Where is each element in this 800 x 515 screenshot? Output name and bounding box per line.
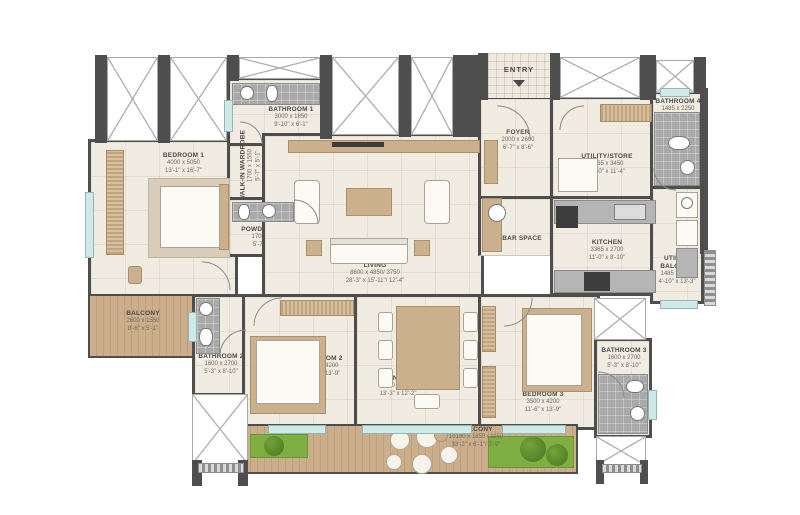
washbasin [199,302,213,316]
bush-icon [264,436,284,456]
room-label-kitchen: KITCHEN 3365 x 2700 11'-0" x 8'-10" [559,239,655,262]
wardrobe [482,366,496,418]
window-bathroom1 [224,100,233,132]
pouf-seat [386,454,402,470]
toilet [266,85,278,102]
pouf-seat [412,454,432,474]
washbasin [680,160,695,175]
wardrobe [482,306,496,352]
shaft-top-1 [107,57,158,141]
sofa-back [330,238,408,245]
bar-basin [488,204,506,222]
tv-console [288,140,480,153]
wall-segment [478,53,488,100]
wardrobe [106,150,124,255]
tv [332,142,384,147]
room-label-bathroom2: BATHROOM 2 1600 x 2700 5'-3" x 8'-10" [193,353,249,376]
wall-segment [453,55,478,137]
wall-segment [550,53,560,100]
bed [256,340,320,404]
kitchen-sink [614,204,646,220]
room-label-bathroom3: BATHROOM 3 1600 x 2700 5'-3" x 8'-10" [598,347,650,370]
dining-chair [378,312,393,332]
wall-segment [158,55,170,143]
chair [128,266,142,284]
toilet [668,136,690,150]
room-balcony-left: BALCONY 2600 x 1550 8'-6" x 5'-1" [88,294,198,358]
toilet [238,204,250,220]
dining-chair [463,312,478,332]
washbasin [630,406,645,421]
wall-segment [95,55,107,143]
side-table [306,240,322,256]
store-box [558,158,598,192]
wall-segment [700,88,708,254]
wardrobe [280,300,354,316]
window-utility-balcony [660,300,698,309]
shoe-cabinet [484,140,498,184]
entry-corridor: ENTRY [488,53,550,98]
toilet [626,380,644,393]
utility-sink [676,248,698,278]
bush-icon [546,444,568,466]
wall-segment [227,55,239,81]
dining-table [396,306,460,390]
window-bedroom2 [268,425,326,434]
wall-segment [399,55,411,137]
bed [526,314,582,386]
fridge [556,206,578,228]
window-bathroom2 [188,312,197,342]
dining-chair [378,368,393,388]
pouf-seat [440,446,458,464]
bed-headboard [219,184,229,250]
hob [584,272,610,291]
bush-icon [520,436,546,462]
wall-segment [640,55,656,100]
window-bathroom4 [660,88,690,97]
shaft-top-3 [239,57,320,79]
dryer [676,220,698,246]
dining-chair [378,340,393,360]
room-label-bathroom1: BATHROOM 1 3000 x 1850 9'-10" x 6'-1" [256,106,326,129]
floor-plan: BEDROOM 1 4000 x 5050 13'-1" x 16'-7" BA… [0,0,800,515]
grille-utility-balcony [704,250,716,306]
grille-shaft-bottom-right [602,464,642,473]
shaft-top-5 [411,57,453,135]
room-label-bedroom3: BEDROOM 3 3500 x 4200 11'-6" x 13'-9" [501,391,585,414]
room-label-bedroom1: BEDROOM 1 4000 x 5050 13'-1" x 16'-7" [131,152,236,175]
side-table [414,240,430,256]
dining-chair [463,340,478,360]
bed [160,186,220,248]
toilet [199,328,213,346]
shaft-kitchen [594,298,646,340]
dining-chair [463,368,478,388]
shaft-top-6 [560,57,640,98]
armchair [294,180,320,224]
window-bathroom3 [648,390,657,420]
storage-unit [600,104,652,122]
washbasin [262,204,276,218]
washer-drum [681,197,693,209]
coffee-table [346,188,392,216]
shaft-bottom-left [192,394,248,464]
window-bedroom3 [502,425,566,434]
room-label-living: LIVING 8600 x 4850/ 3750 28'-3" x 15'-11… [305,262,445,285]
entry-label: ENTRY [488,65,550,74]
armchair [424,180,450,224]
entry-arrow-icon [513,80,525,87]
window-bedroom1 [85,192,94,258]
shaft-top-2 [170,57,227,141]
dining-chair [414,394,440,409]
grille-shaft-bottom-left [198,463,244,473]
washbasin [240,86,254,100]
shaft-top-4 [332,57,399,135]
wall-segment [320,55,332,139]
room-label-balcony-left: BALCONY 2600 x 1550 8'-6" x 5'-1" [98,310,188,333]
sliding-door-dining [362,425,472,434]
